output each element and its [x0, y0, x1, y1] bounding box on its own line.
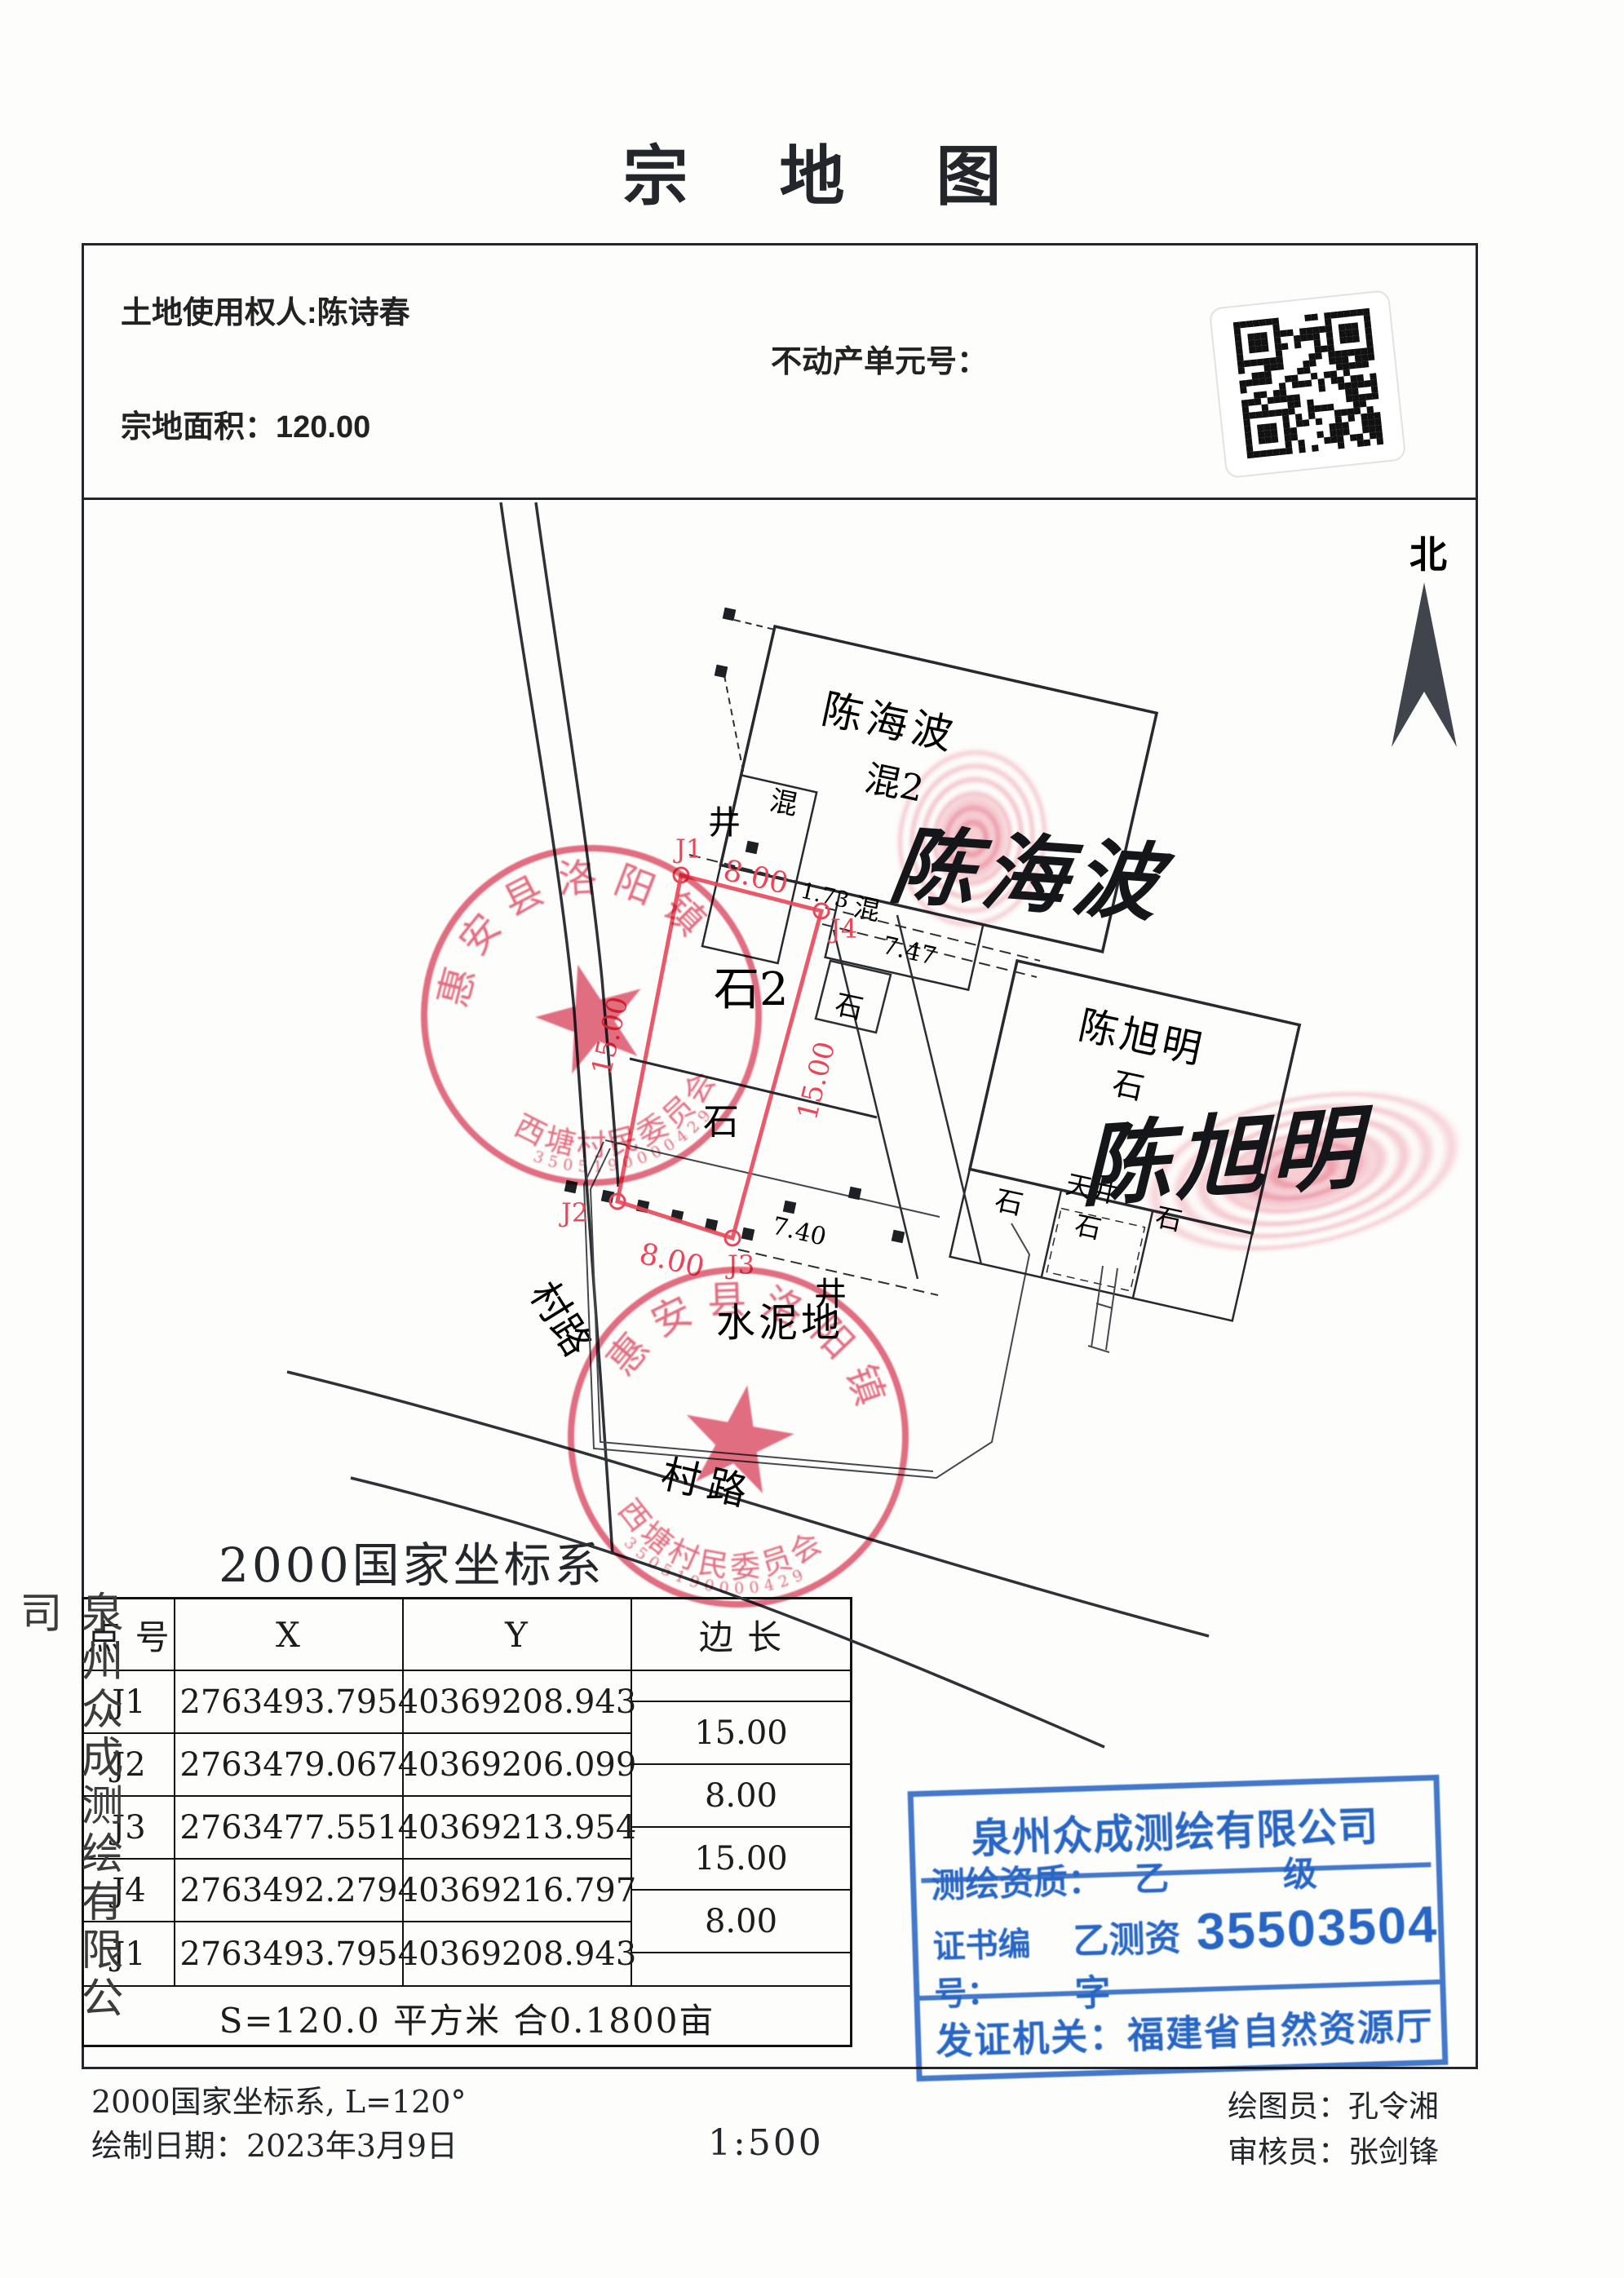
- footer-reviewer: 审核员：张剑锋: [1228, 2127, 1439, 2171]
- table-cell-y: 40369216.797: [404, 1860, 632, 1922]
- table-cell-x: 2763493.795: [175, 1671, 404, 1734]
- table-edge-column: 边 长 15.00 8.00 15.00 8.00: [632, 1599, 850, 1985]
- qr-code: [1233, 308, 1384, 459]
- table-cell-y: 40369213.954: [404, 1797, 632, 1860]
- page-title: 宗 地 图: [0, 124, 1624, 219]
- footer-drafter: 绘图员：孔令湘: [1228, 2081, 1439, 2125]
- surveyor-stamp: 泉州众成测绘有限公司 测绘资质： 乙 级 证书编号： 乙测资字 35503504…: [908, 1775, 1449, 2081]
- table-cell-x: 2763493.795: [175, 1922, 404, 1985]
- parcel-area-field: 宗地面积：120.00: [121, 401, 370, 446]
- area-summary: S=120.0 平方米 合0.1800亩: [84, 1985, 850, 2049]
- surveyor-qualification-rows: 测绘资质： 乙 级 证书编号： 乙测资字 35503504: [916, 1867, 1440, 2001]
- col-header-x: X: [175, 1599, 404, 1671]
- col-header-edge: 边 长: [632, 1599, 850, 1671]
- edge-length: 8.00: [632, 1765, 850, 1828]
- col-header-y: Y: [404, 1599, 632, 1671]
- edge-spacer: [632, 1953, 850, 1985]
- edge-length: 15.00: [632, 1828, 850, 1891]
- edge-length: 15.00: [632, 1702, 850, 1765]
- land-owner-field: 土地使用权人:陈诗春: [121, 287, 410, 332]
- table-cell-x: 2763492.279: [175, 1860, 404, 1922]
- table-cell-y: 40369208.943: [404, 1671, 632, 1734]
- table-cell-y: 40369206.099: [404, 1734, 632, 1797]
- table-cell-x: 2763477.551: [175, 1797, 404, 1860]
- table-cell-y: 40369208.943: [404, 1922, 632, 1985]
- coordinate-table: 点 号 X Y J1 2763493.795 40369208.943 J2 2…: [82, 1597, 852, 2047]
- certificate-label: 证书编号：: [932, 1916, 1076, 2015]
- edge-spacer: [632, 1671, 850, 1702]
- footer-crs: 2000国家坐标系, L=120°: [91, 2077, 466, 2121]
- table-left-grid: 点 号 X Y J1 2763493.795 40369208.943 J2 2…: [84, 1599, 632, 1985]
- map-scale: 1:500: [708, 2122, 824, 2164]
- header-divider: [82, 498, 1478, 500]
- edge-length: 8.00: [632, 1891, 850, 1953]
- certificate-prefix: 乙测资字: [1072, 1908, 1198, 2016]
- table-title: 2000国家坐标系: [219, 1527, 605, 1595]
- side-company-text: 泉州众成测绘有限公司: [7, 1590, 129, 2059]
- footer-date: 绘制日期：2023年3月9日: [91, 2121, 458, 2165]
- estate-unit-field: 不动产单元号：: [771, 336, 988, 381]
- parcel-map-sheet: 宗 地 图 土地使用权人:陈诗春 不动产单元号： 宗地面积：120.00 200…: [0, 0, 1624, 2278]
- certificate-number: 35503504: [1196, 1895, 1439, 1961]
- surveyor-company: 泉州众成测绘有限公司: [918, 1780, 1431, 1883]
- table-cell-x: 2763479.067: [175, 1734, 404, 1797]
